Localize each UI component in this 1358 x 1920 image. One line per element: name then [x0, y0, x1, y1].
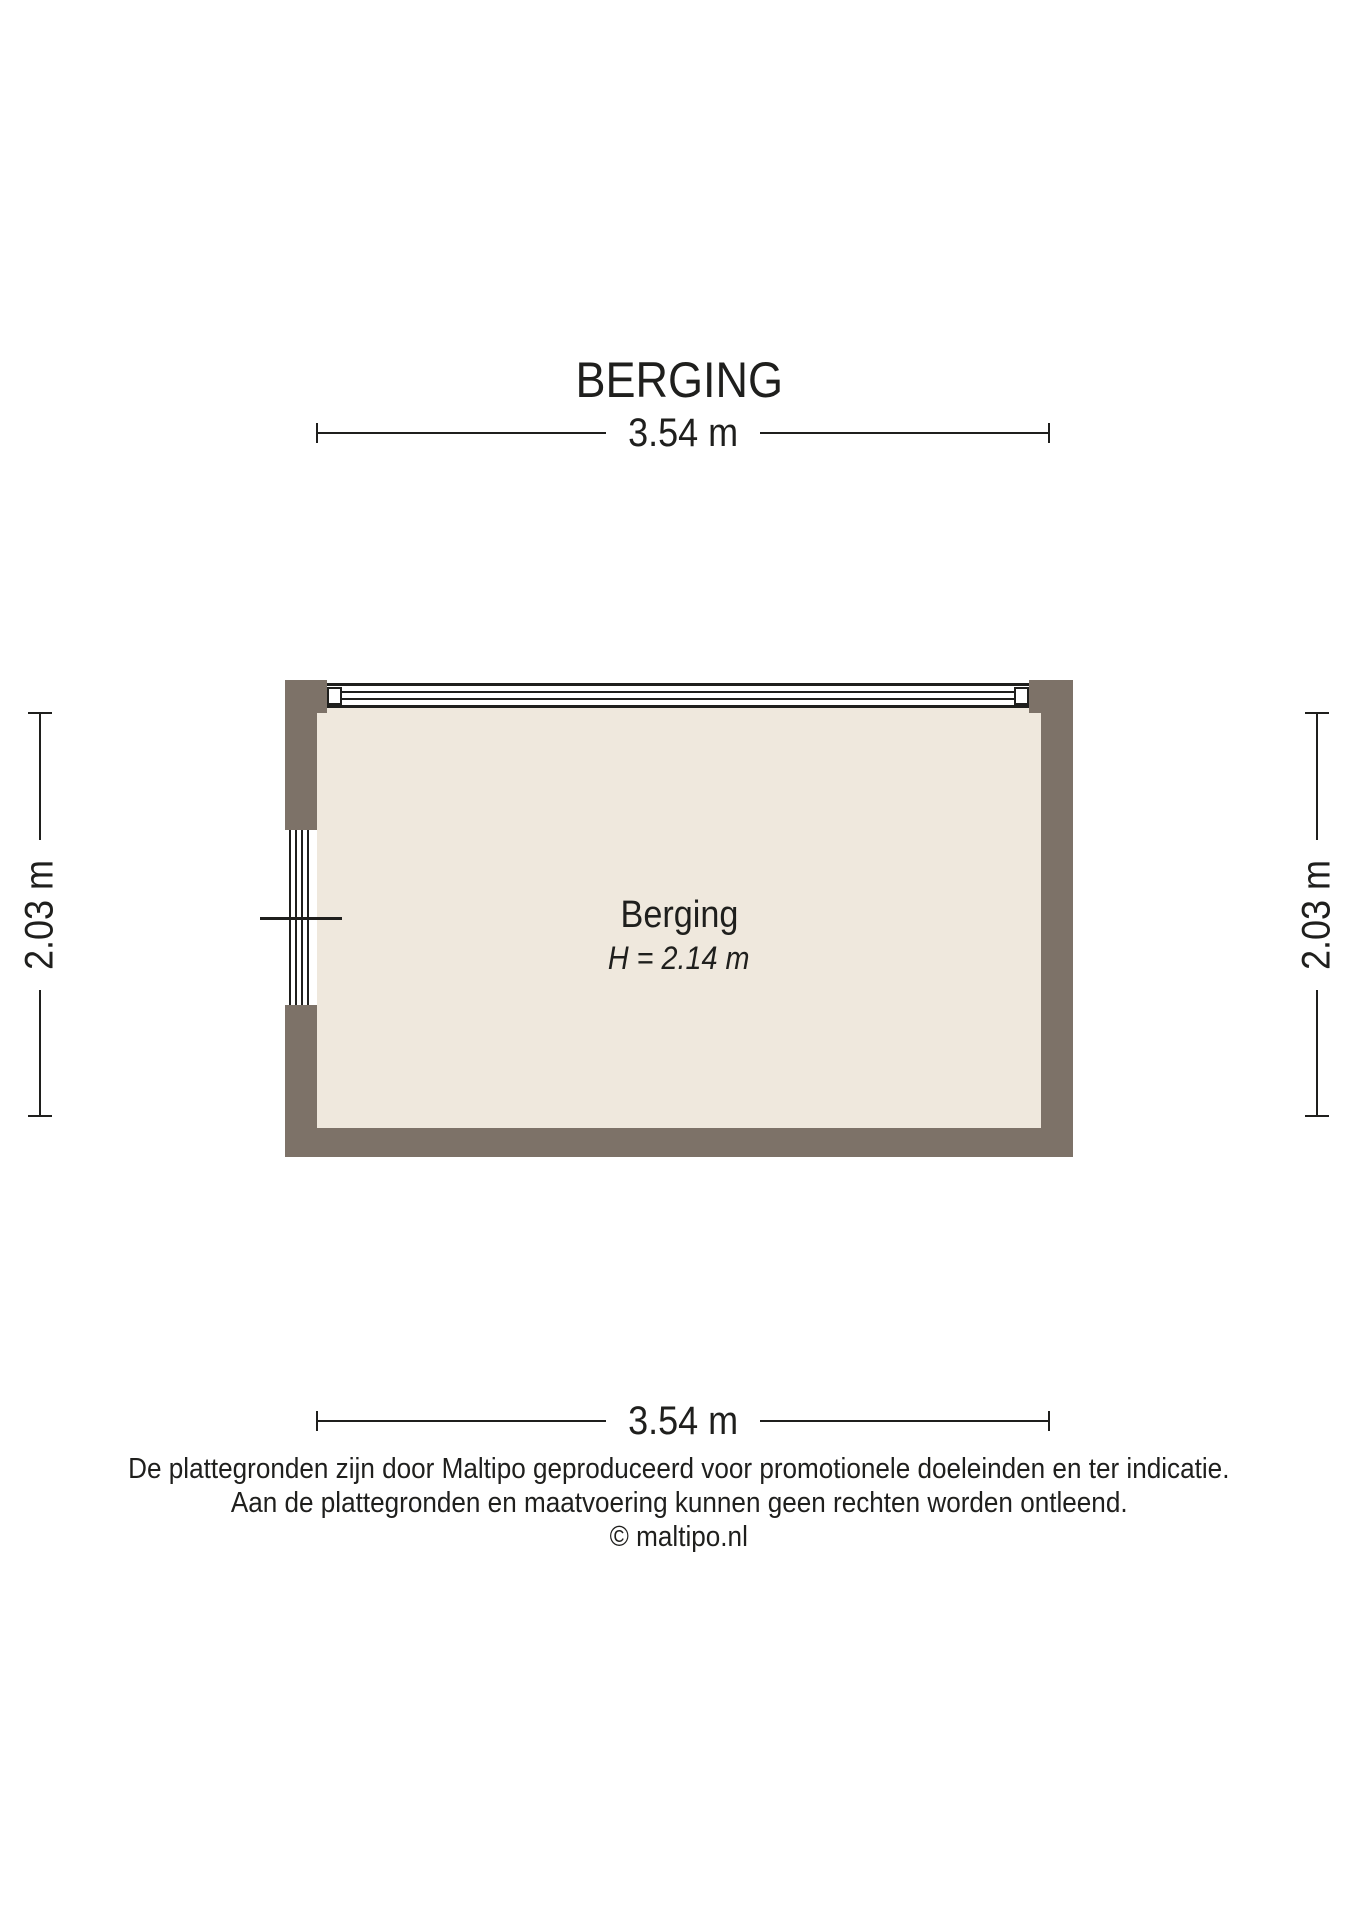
window-top	[327, 683, 1029, 708]
footer-line-2: Aan de plattegronden en maatvoering kunn…	[0, 1486, 1358, 1520]
wall-right	[1041, 680, 1073, 1157]
dimension-line	[318, 432, 606, 434]
room-ceiling-height: H = 2.14 m	[317, 939, 1041, 977]
dimension-tick	[28, 1115, 52, 1117]
dimension-tick	[1048, 423, 1050, 443]
dimension-line	[318, 1420, 606, 1422]
dimension-line	[1316, 990, 1318, 1116]
plan-title: BERGING	[0, 352, 1358, 408]
room-label: Berging H = 2.14 m	[317, 892, 1041, 977]
room-name: Berging	[317, 892, 1041, 938]
dimension-top-label: 3.54 m	[606, 410, 760, 456]
dimension-line	[39, 714, 41, 840]
dimension-line	[1316, 714, 1318, 840]
dimension-right: 2.03 m	[1305, 712, 1329, 1117]
dimension-left-value: 2.03 m	[18, 859, 63, 969]
dimension-left: 2.03 m	[28, 712, 52, 1117]
dimension-bottom-label: 3.54 m	[606, 1398, 760, 1444]
room-ceiling-height-text: H = 2.14 m	[608, 939, 750, 977]
floorplan-page: BERGING 3.54 m 2.03 m 2.03 m	[0, 0, 1358, 1920]
dimension-left-label: 2.03 m	[28, 840, 52, 990]
dimension-bottom: 3.54 m	[316, 1411, 1050, 1431]
wall-bottom	[285, 1128, 1073, 1157]
dimension-line	[39, 990, 41, 1116]
dimension-bottom-value: 3.54 m	[628, 1398, 738, 1444]
wall-left-upper	[285, 680, 317, 830]
dimension-tick	[1305, 1115, 1329, 1117]
window-pane-line	[327, 691, 1029, 693]
dimension-right-label: 2.03 m	[1305, 840, 1329, 990]
window-cap-right	[1014, 687, 1029, 705]
dimension-top-value: 3.54 m	[628, 410, 738, 456]
footer-copyright-text: © maltipo.nl	[610, 1520, 748, 1554]
dimension-line	[760, 1420, 1048, 1422]
dimension-right-value: 2.03 m	[1295, 859, 1340, 969]
footer-copyright: © maltipo.nl	[0, 1520, 1358, 1554]
dimension-top: 3.54 m	[316, 423, 1050, 443]
window-cap-left	[327, 687, 342, 705]
plan-title-text: BERGING	[575, 352, 783, 408]
footer-line-2-text: Aan de plattegronden en maatvoering kunn…	[231, 1486, 1128, 1520]
dimension-tick	[1048, 1411, 1050, 1431]
footer-disclaimer: De plattegronden zijn door Maltipo gepro…	[0, 1452, 1358, 1554]
room-name-text: Berging	[620, 892, 738, 938]
footer-line-1-text: De plattegronden zijn door Maltipo gepro…	[128, 1452, 1229, 1486]
dimension-line	[760, 432, 1048, 434]
window-pane-line	[327, 698, 1029, 700]
footer-line-1: De plattegronden zijn door Maltipo gepro…	[0, 1452, 1358, 1486]
